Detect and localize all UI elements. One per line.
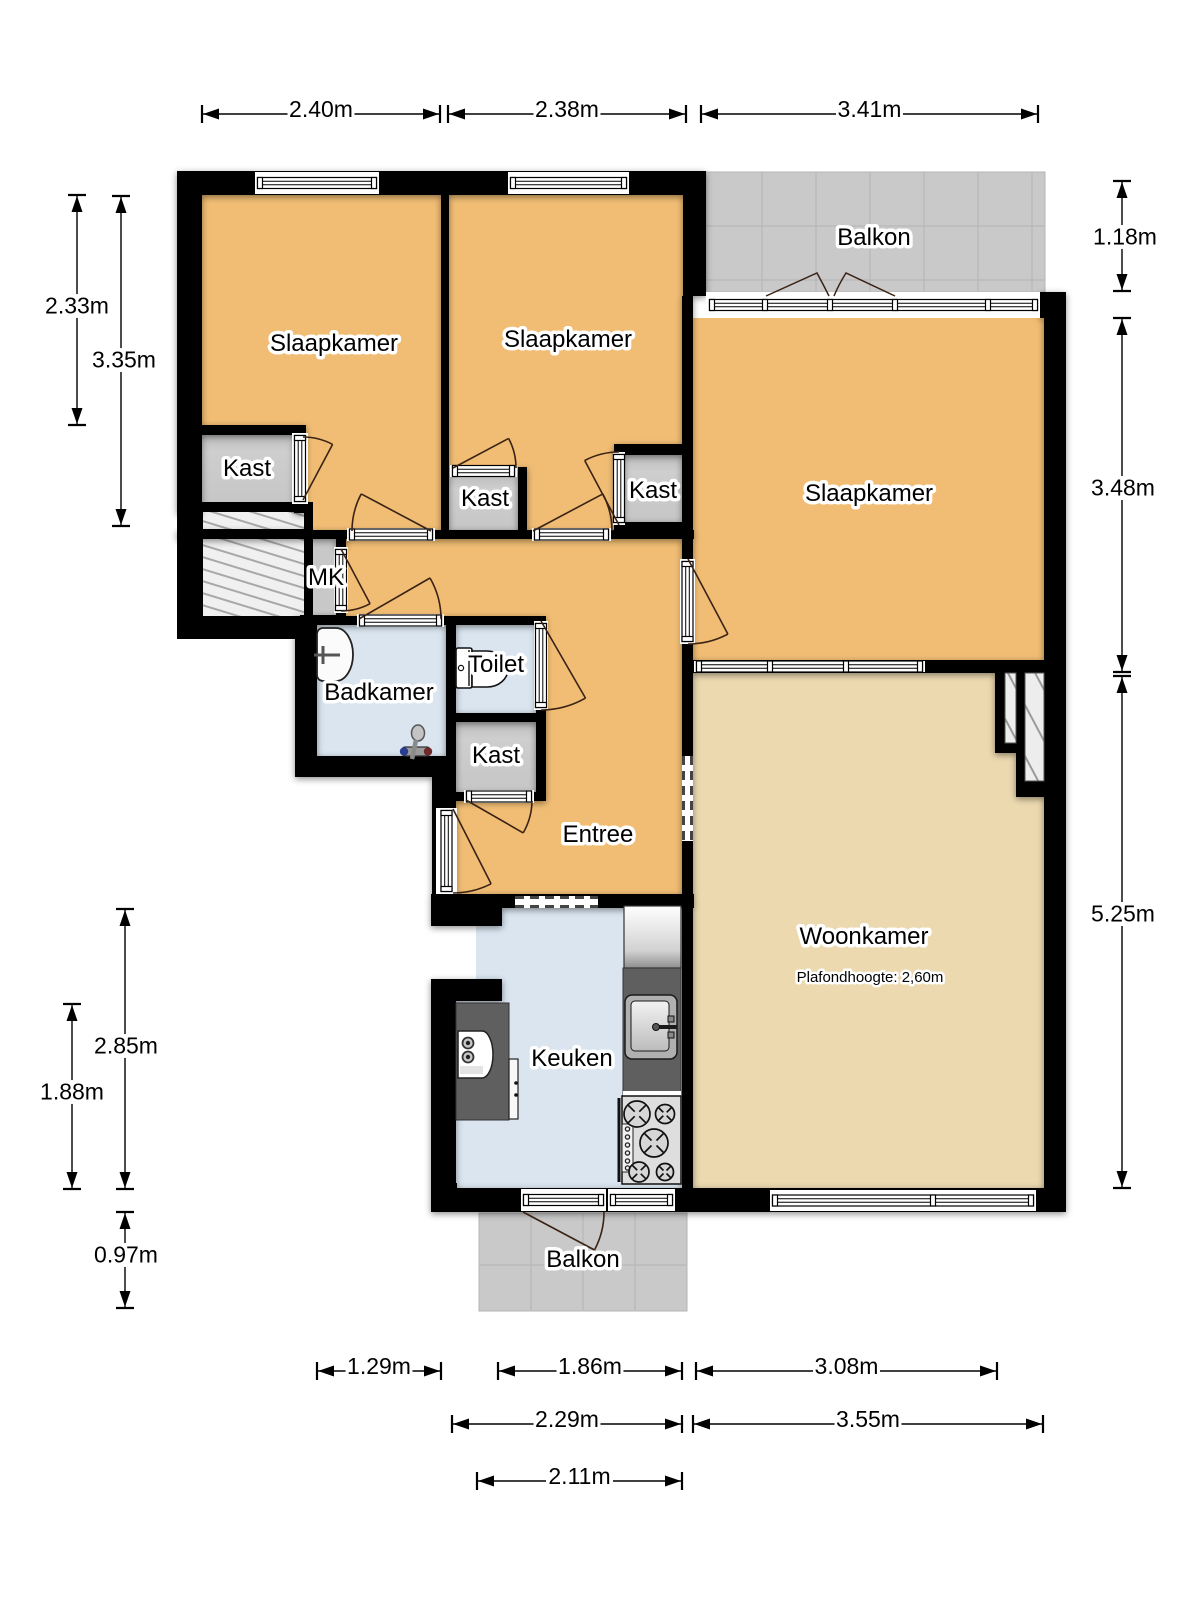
svg-text:0.97m: 0.97m [94, 1242, 158, 1268]
svg-text:Woonkamer: Woonkamer [800, 923, 929, 950]
svg-text:2.29m: 2.29m [535, 1406, 599, 1432]
svg-text:Keuken: Keuken [531, 1045, 612, 1072]
svg-text:Kast: Kast [472, 742, 520, 769]
svg-text:2.33m: 2.33m [45, 293, 109, 319]
svg-text:Toilet: Toilet [468, 651, 524, 678]
svg-text:5.25m: 5.25m [1091, 901, 1155, 927]
svg-text:Slaapkamer: Slaapkamer [504, 326, 632, 353]
svg-text:2.40m: 2.40m [289, 96, 353, 122]
svg-text:3.48m: 3.48m [1091, 475, 1155, 501]
svg-text:1.86m: 1.86m [558, 1353, 622, 1379]
svg-text:3.41m: 3.41m [838, 96, 902, 122]
svg-text:Kast: Kast [223, 455, 271, 482]
svg-text:1.29m: 1.29m [347, 1353, 411, 1379]
svg-text:2.38m: 2.38m [535, 96, 599, 122]
svg-text:Plafondhoogte: 2,60m: Plafondhoogte: 2,60m [797, 969, 944, 986]
svg-text:Kast: Kast [629, 477, 677, 504]
svg-text:2.85m: 2.85m [94, 1033, 158, 1059]
svg-text:Kast: Kast [461, 485, 509, 512]
svg-text:2.11m: 2.11m [548, 1463, 610, 1489]
svg-text:Slaapkamer: Slaapkamer [270, 330, 398, 357]
svg-text:1.18m: 1.18m [1093, 224, 1157, 250]
svg-text:Badkamer: Badkamer [324, 679, 433, 706]
svg-text:Balkon: Balkon [546, 1246, 619, 1273]
svg-text:1.88m: 1.88m [40, 1079, 104, 1105]
svg-text:Entree: Entree [563, 821, 634, 848]
svg-text:3.35m: 3.35m [92, 347, 156, 373]
svg-text:3.08m: 3.08m [815, 1353, 879, 1379]
svg-text:MK: MK [308, 564, 344, 591]
svg-text:Slaapkamer: Slaapkamer [805, 480, 933, 507]
svg-text:Balkon: Balkon [837, 224, 910, 251]
svg-text:3.55m: 3.55m [836, 1406, 900, 1432]
